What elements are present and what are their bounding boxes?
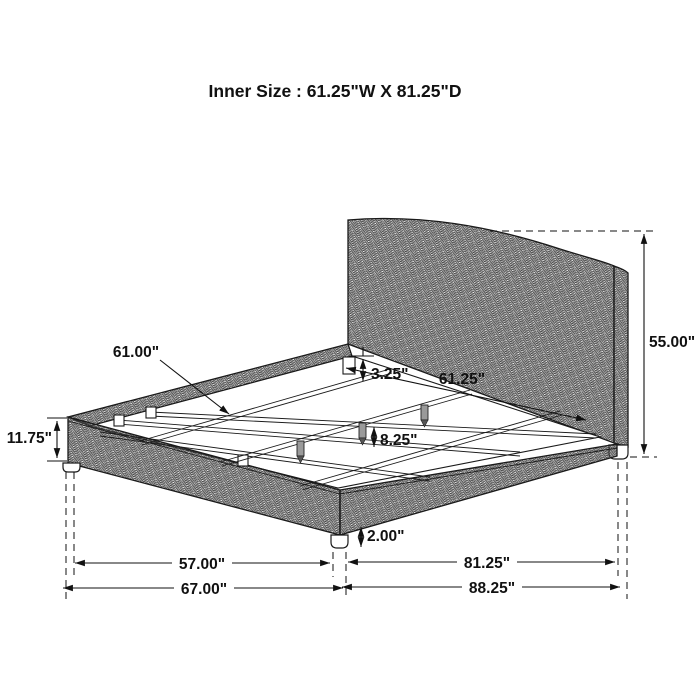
rail-hanger-bracket — [343, 357, 355, 374]
dim-front-inner-span-label: 57.00" — [179, 556, 225, 573]
dim-leg-height-label: 2.00" — [367, 528, 405, 545]
dim-footboard-height-label: 11.75" — [7, 430, 52, 447]
dim-headboard-height-label: 55.00" — [649, 334, 695, 351]
footboard-left-leg — [63, 463, 80, 472]
dim-inner-width-label: 61.25" — [439, 371, 485, 388]
bed-dimension-diagram: Inner Size : 61.25"W X 81.25"D 61.00" 3.… — [0, 0, 700, 700]
slat-bracket-2 — [114, 415, 124, 426]
dim-overall-depth-label: 88.25" — [469, 580, 515, 597]
dim-inner-depth-label: 81.25" — [464, 555, 510, 572]
slat-bracket-1 — [146, 407, 156, 418]
front-center-leg — [331, 535, 348, 548]
dim-slat-length-label: 61.00" — [113, 344, 159, 361]
dim-leg-height: 2.00" — [361, 527, 405, 547]
headboard-side-edge — [614, 266, 628, 447]
inner-size-title: Inner Size : 61.25"W X 81.25"D — [209, 81, 462, 101]
dim-overall-width-label: 67.00" — [181, 581, 227, 598]
dim-slat-spacing-label: 8.25" — [380, 432, 418, 449]
